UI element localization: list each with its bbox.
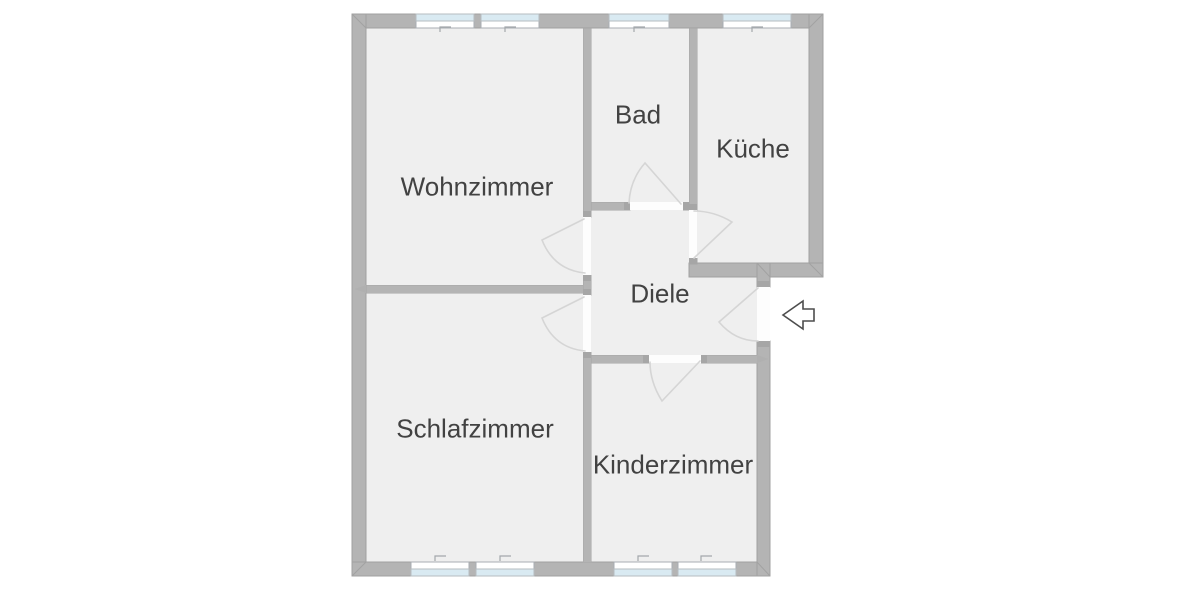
window [678, 562, 736, 576]
jamb-cap [689, 258, 697, 264]
opening-entrance [757, 287, 770, 341]
jamb-cap [583, 211, 591, 217]
window [416, 14, 474, 28]
floor-plan: Wohnzimmer Bad Küche Diele Schlafzimmer … [0, 0, 1200, 600]
window [609, 14, 669, 28]
floor-plan-svg [0, 0, 1200, 600]
jamb-cap [583, 352, 591, 358]
wall-wohn-schlaf [366, 285, 583, 293]
opening-wohnzimmer [583, 217, 591, 275]
window [614, 562, 672, 576]
jamb-cap [683, 202, 689, 210]
wall-right-lower-b [757, 341, 770, 576]
jamb-cap [643, 355, 649, 363]
wall-divider-b1 [689, 28, 697, 210]
room-label-diele: Diele [630, 279, 689, 310]
wall-diele-bottom-l [591, 355, 649, 363]
jamb-cap [701, 355, 707, 363]
wall-diele-bottom-r [701, 355, 757, 363]
jamb-cap [689, 204, 697, 210]
wall-divider-a3 [583, 352, 591, 562]
room-label-wohnzimmer: Wohnzimmer [401, 172, 554, 203]
wall-divider-a1 [583, 28, 591, 217]
wall-kueche-bottom [689, 263, 823, 277]
room-label-schlafzimmer: Schlafzimmer [396, 414, 553, 445]
window [476, 562, 534, 576]
jamb-cap [583, 275, 591, 281]
window [411, 562, 469, 576]
wall-right-upper [809, 14, 823, 277]
opening-bad [630, 202, 683, 210]
entrance-arrow-icon [783, 301, 814, 329]
jamb-cap [757, 341, 770, 347]
opening-kinderzimmer [649, 355, 701, 363]
jamb-cap [757, 281, 770, 287]
wall-left [352, 14, 366, 576]
jamb-cap [583, 289, 591, 295]
room-label-kueche: Küche [716, 134, 790, 165]
window [481, 14, 539, 28]
window [723, 14, 791, 28]
room-label-bad: Bad [615, 100, 661, 131]
opening-kueche [689, 210, 697, 258]
opening-schlafzimmer [583, 295, 591, 352]
room-label-kinderzimmer: Kinderzimmer [593, 450, 753, 481]
